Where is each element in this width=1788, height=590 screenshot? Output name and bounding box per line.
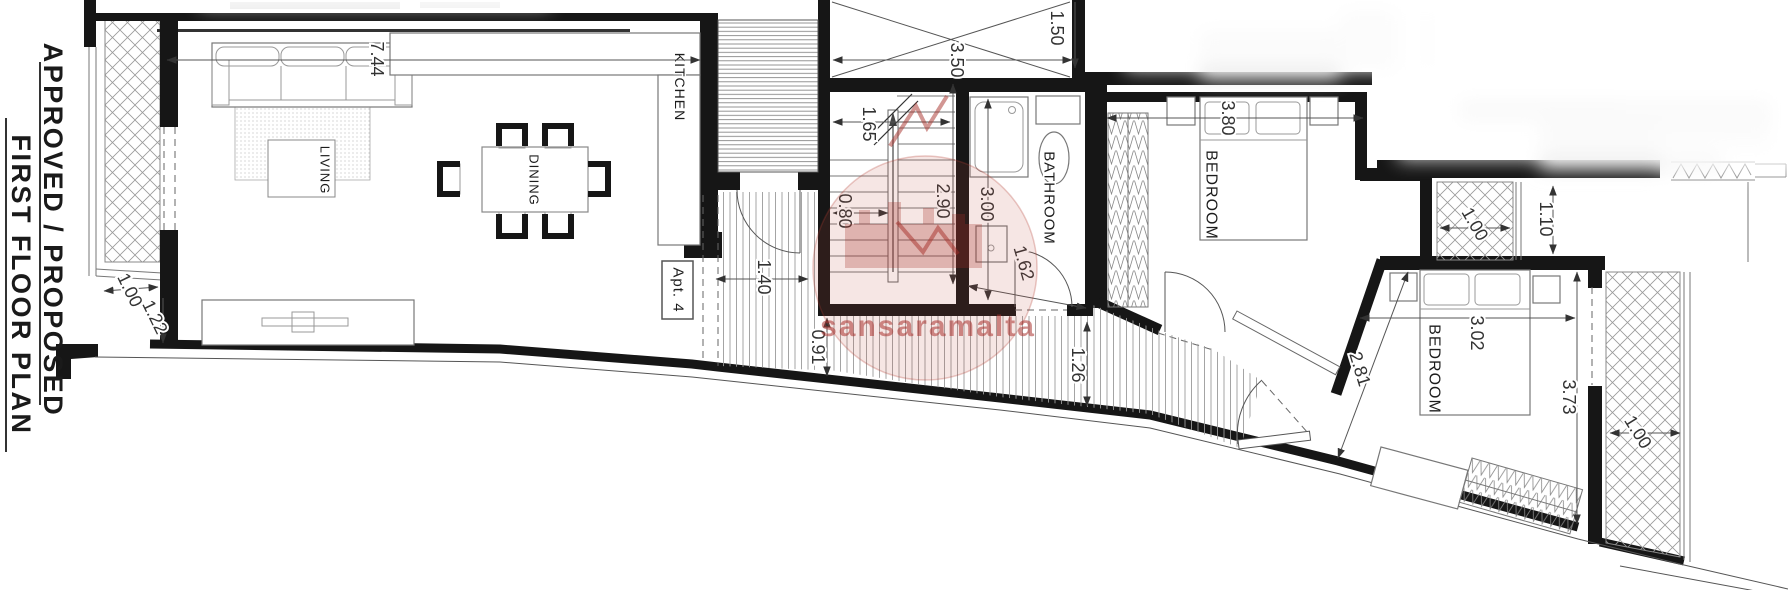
dim-terrace-gap: 1.10 [1536,201,1556,236]
desk [1371,447,1468,509]
dining-label: DINING [527,154,542,206]
dim-stair-landing: 1.65 [859,106,879,141]
nightstand [1310,97,1338,125]
kitchen-counter-top [390,33,700,75]
bedroom1-label: BEDROOM [1203,150,1220,240]
bathroom-label: BATHROOM [1041,151,1058,245]
nightstand [1167,97,1195,125]
balcony-bottom-right [1606,272,1690,562]
dim-corridor-right: 1.26 [1068,347,1088,382]
bathtub [970,97,1028,177]
dim-bedroom1-width: 3.80 [1218,100,1238,135]
apartment-tag: Apt. 4 [662,261,693,319]
wardrobe-1 [1108,113,1148,307]
title-line1: APPROVED / PROPOSED [38,43,68,418]
bedroom2-label: BEDROOM [1426,324,1443,414]
dim-bedroom2-wall: 2.81 [1345,349,1374,388]
nightstand [1390,273,1417,301]
dim-bedroom2-length: 3.73 [1559,379,1579,414]
bedroom-2: BEDROOM [1237,270,1582,534]
floor-plan-drawing: LIVING DINING KITCHEN [0,0,1788,590]
dim-void-side: 1.50 [1047,10,1067,45]
dim-entrance-width: 1.40 [754,259,774,294]
shaft [718,20,818,172]
dim-bedroom2-width: 3.02 [1467,315,1487,350]
watermark-text: sansaramalta [820,310,1036,343]
wardrobe-2 [1459,458,1582,534]
title-block: APPROVED / PROPOSED FIRST FLOOR PLAN [6,43,68,452]
title-line2: FIRST FLOOR PLAN [6,135,36,436]
wall [84,0,96,47]
tv-unit [202,300,414,345]
nightstand [1533,276,1560,303]
floor-plan-page: LIVING DINING KITCHEN [0,0,1788,590]
dim-void-width: 3.50 [947,42,967,77]
living-room: LIVING [202,43,414,345]
apartment-label: Apt. 4 [670,267,687,312]
kitchen-label: KITCHEN [672,53,688,121]
dim-living-width: 7.44 [367,41,387,76]
balcony-top-left [84,0,162,280]
dining-area: DINING [438,126,610,236]
living-label: LIVING [318,146,333,195]
